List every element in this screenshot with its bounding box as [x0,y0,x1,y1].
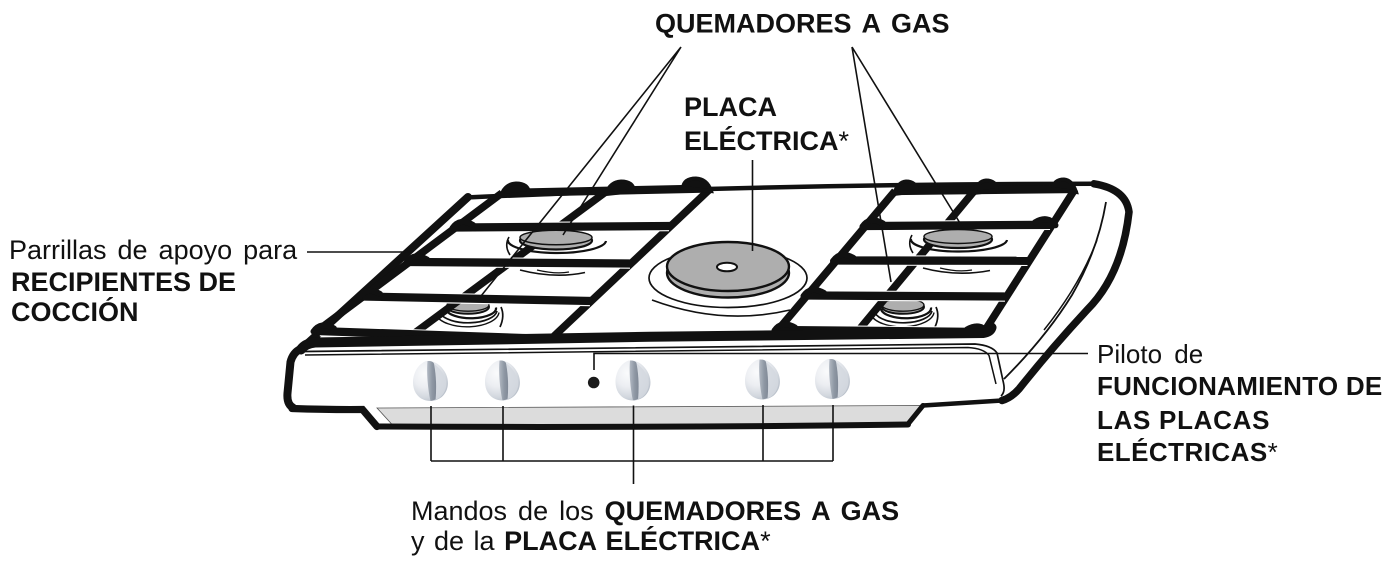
svg-text:Piloto de: Piloto de [1097,339,1203,369]
svg-text:ELÉCTRICAS*: ELÉCTRICAS* [1097,437,1278,467]
svg-text:ELÉCTRICA*: ELÉCTRICA* [684,125,850,156]
svg-text:y de la PLACA ELÉCTRICA*: y de la PLACA ELÉCTRICA* [411,525,771,556]
svg-text:COCCIÓN: COCCIÓN [11,296,139,327]
svg-text:LAS PLACAS: LAS PLACAS [1097,405,1270,435]
svg-text:Mandos de los QUEMADORES A GAS: Mandos de los QUEMADORES A GAS [411,496,899,526]
svg-text:FUNCIONAMIENTO DE: FUNCIONAMIENTO DE [1097,371,1382,401]
svg-text:PLACA: PLACA [684,92,777,122]
svg-text:RECIPIENTES DE: RECIPIENTES DE [11,267,236,297]
svg-text:QUEMADORES A GAS: QUEMADORES A GAS [655,9,950,39]
svg-text:Parrillas de apoyo para: Parrillas de apoyo para [9,235,298,265]
